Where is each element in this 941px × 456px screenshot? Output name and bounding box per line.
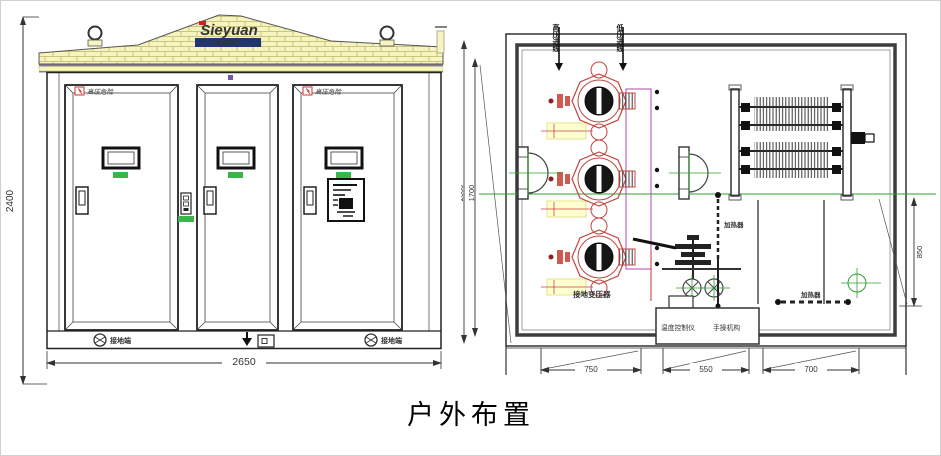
transformer-label: 接地变压器 (573, 289, 611, 299)
warning-text: 高压危险 (87, 88, 115, 96)
eyebolt-icon (380, 27, 394, 47)
warning-label-left: 高压危险 (75, 87, 115, 96)
warning-label-right: 高压危险 (303, 87, 343, 96)
drawing-sheet: 2400 Sieyuan (0, 0, 941, 456)
green-sticker (336, 172, 351, 178)
green-sticker (113, 172, 128, 178)
dim-width-label: 2650 (232, 356, 256, 368)
dimension-width-2650: 2650 (47, 351, 441, 369)
door-handle[interactable] (76, 187, 88, 214)
heater-label: 加热器 (800, 290, 821, 299)
dimension-left-1700: 1700 (467, 59, 511, 343)
dim-label: 850 (915, 246, 924, 259)
eyebolt-icon (88, 27, 102, 47)
dimension-left-2000: 2000 (461, 41, 465, 343)
resistor-elements (754, 97, 829, 131)
incoming-line-label-right: 低压进线 (616, 24, 623, 66)
heater-label: 加热器 (723, 220, 744, 229)
resistor-elements (754, 142, 829, 178)
roof-edge-piece (435, 27, 447, 53)
vent-mark (228, 75, 233, 80)
roof: Sieyuan 思源电气 (39, 15, 447, 73)
dimension-bottom-550: 550 (663, 348, 749, 374)
plan-view: 2000 1700 850 750 5 (461, 1, 941, 401)
green-sticker (228, 172, 243, 178)
drawing-title: 户外布置 (321, 393, 621, 432)
nameplate-diagram (328, 179, 364, 221)
dimension-bottom-700: 700 (763, 348, 859, 374)
dim-label: 750 (584, 365, 598, 374)
brand-text: Sieyuan (200, 22, 258, 39)
dim-label: 700 (804, 365, 818, 374)
dim-height-label: 2400 (5, 189, 16, 212)
front-elevation-view: 2400 Sieyuan (1, 1, 461, 391)
control-label: 温度控制仪 (661, 323, 695, 332)
door-handle[interactable] (204, 187, 216, 214)
terminal-connector (851, 132, 865, 144)
incoming-line-label-left: 高压进线 (552, 24, 559, 66)
green-sticker (178, 216, 194, 222)
dim-label: 1700 (467, 185, 476, 202)
roof-trim-line (39, 65, 443, 67)
door-handle[interactable] (304, 187, 316, 214)
ground-label: 接地端 (381, 336, 402, 345)
dim-label: 2000 (461, 185, 465, 202)
warning-text: 高压危险 (315, 88, 343, 96)
dim-label: 550 (699, 365, 713, 374)
dimension-bottom-750: 750 (541, 348, 641, 374)
brand-subtext: 思源电气 (215, 38, 242, 47)
brand-logo: Sieyuan 思源电气 (195, 21, 261, 47)
ground-label: 接地端 (110, 336, 131, 345)
control-label: 手操机构 (713, 323, 740, 332)
